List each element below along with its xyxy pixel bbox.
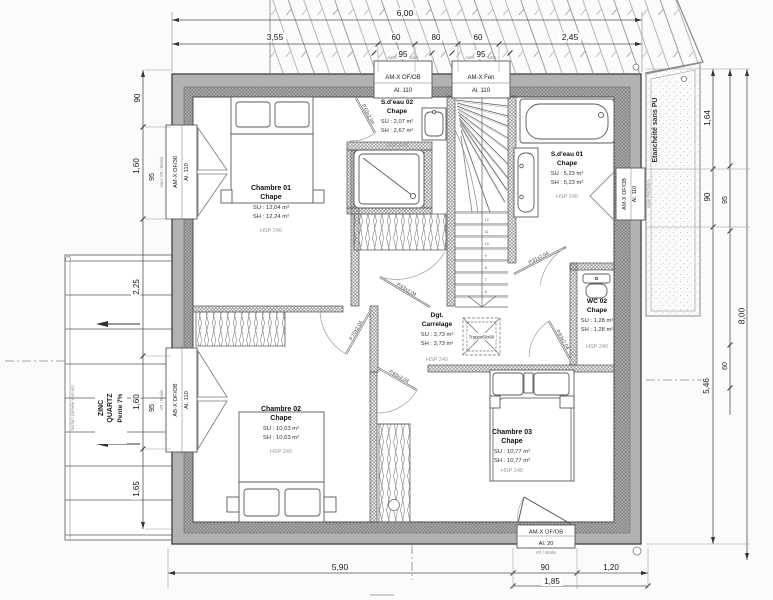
- svg-text:Al. 20: Al. 20: [539, 541, 554, 547]
- svg-text:Al. 110: Al. 110: [394, 88, 413, 94]
- svg-text:95: 95: [149, 404, 156, 412]
- svg-text:sans VR / Bsolin: sans VR / Bsolin: [159, 156, 164, 187]
- svg-text:1,20: 1,20: [603, 563, 619, 572]
- svg-text:AM-X OF/36: AM-X OF/36: [173, 156, 179, 188]
- svg-text:Chambre 02: Chambre 02: [261, 406, 301, 413]
- svg-text:ZINC: ZINC: [98, 400, 105, 416]
- svg-text:AB-X OF/OB: AB-X OF/OB: [173, 383, 179, 416]
- svg-text:80: 80: [432, 33, 441, 42]
- svg-text:Dgt.: Dgt.: [431, 312, 444, 319]
- svg-text:SH : 3,73 m²: SH : 3,73 m²: [421, 341, 454, 347]
- svg-text:Chambre 03: Chambre 03: [492, 429, 532, 436]
- svg-text:2,25: 2,25: [132, 279, 141, 295]
- svg-text:Pente 7%: Pente 7%: [117, 393, 124, 422]
- svg-text:60: 60: [722, 362, 729, 370]
- svg-text:90: 90: [541, 563, 550, 572]
- svg-text:SH : 1,28 m²: SH : 1,28 m²: [581, 327, 614, 333]
- svg-text:AM-X Fen: AM-X Fen: [467, 75, 494, 81]
- svg-text:5,46: 5,46: [702, 378, 711, 394]
- svg-text:1,60: 1,60: [132, 158, 141, 174]
- svg-text:SU : 12,04 m²: SU : 12,04 m²: [253, 205, 289, 211]
- svg-text:Al. 110: Al. 110: [184, 391, 190, 409]
- svg-text:AM-X OF/OB: AM-X OF/OB: [385, 75, 420, 81]
- svg-text:6,00: 6,00: [397, 8, 414, 18]
- svg-text:Chape: Chape: [270, 415, 292, 422]
- svg-text:VR / Bsolin: VR / Bsolin: [159, 389, 164, 410]
- svg-text:SU : 10,63 m²: SU : 10,63 m²: [263, 426, 299, 432]
- svg-text:SH : 5,23 m²: SH : 5,23 m²: [551, 180, 584, 186]
- svg-text:Chape: Chape: [501, 438, 523, 445]
- svg-text:95: 95: [722, 196, 729, 204]
- svg-text:SH : 12,24 m²: SH : 12,24 m²: [253, 214, 289, 220]
- svg-text:SH : 2,67 m²: SH : 2,67 m²: [381, 128, 414, 134]
- svg-text:VR / Bsolin: VR / Bsolin: [536, 550, 557, 555]
- svg-text:95: 95: [477, 50, 486, 59]
- svg-text:SU : 2,07 m²: SU : 2,07 m²: [381, 119, 414, 125]
- svg-text:Chape: Chape: [557, 160, 577, 167]
- svg-text:SU : 10,77 m²: SU : 10,77 m²: [494, 449, 530, 455]
- svg-text:1,65: 1,65: [132, 481, 141, 497]
- svg-text:HSP 240: HSP 240: [501, 468, 523, 474]
- svg-text:1,85: 1,85: [544, 577, 560, 586]
- svg-text:HSP 240: HSP 240: [260, 228, 282, 234]
- svg-text:AM-X OF/OB: AM-X OF/OB: [622, 178, 628, 210]
- svg-text:Carrelage: Carrelage: [422, 321, 453, 328]
- svg-text:HSP 240: HSP 240: [586, 344, 608, 350]
- svg-text:HSP 240: HSP 240: [386, 143, 408, 149]
- svg-text:90: 90: [703, 192, 712, 201]
- svg-text:SH : 10,63 m²: SH : 10,63 m²: [263, 435, 299, 441]
- svg-text:95: 95: [149, 173, 156, 181]
- svg-text:HSP 240: HSP 240: [270, 449, 292, 455]
- svg-text:Al. 110: Al. 110: [184, 163, 190, 181]
- svg-text:8,00: 8,00: [736, 307, 746, 324]
- svg-text:Chambre 01: Chambre 01: [251, 185, 291, 192]
- svg-text:S.d'eau 01: S.d'eau 01: [551, 151, 584, 158]
- svg-text:Trappe60x60: Trappe60x60: [469, 335, 495, 340]
- svg-text:Chape: Chape: [260, 194, 282, 201]
- svg-text:1,64: 1,64: [703, 110, 712, 126]
- svg-text:95: 95: [399, 50, 408, 59]
- svg-text:SU : 1,28 m²: SU : 1,28 m²: [581, 318, 614, 324]
- svg-text:HSP 240: HSP 240: [556, 194, 578, 200]
- svg-text:10: 10: [485, 241, 490, 246]
- svg-text:Al. 110: Al. 110: [472, 88, 491, 94]
- svg-text:90: 90: [133, 93, 142, 102]
- svg-text:5,90: 5,90: [332, 562, 349, 572]
- svg-text:60: 60: [392, 33, 401, 42]
- svg-text:Sortant (arrivée vent-air): Sortant (arrivée vent-air): [70, 385, 75, 431]
- svg-text:WC 02: WC 02: [587, 298, 607, 305]
- svg-text:Etanchéité sans PU: Etanchéité sans PU: [652, 98, 659, 163]
- svg-text:QUARTZ: QUARTZ: [107, 393, 114, 423]
- svg-text:1,60: 1,60: [132, 394, 141, 410]
- svg-text:SU : 5,23 m²: SU : 5,23 m²: [551, 171, 584, 177]
- svg-text:S.d'eau 02: S.d'eau 02: [381, 99, 414, 106]
- svg-text:Chape: Chape: [587, 307, 607, 314]
- svg-text:SH : 10,77 m²: SH : 10,77 m²: [494, 458, 530, 464]
- svg-text:HSP 240: HSP 240: [426, 357, 448, 363]
- svg-text:2,45: 2,45: [562, 32, 579, 42]
- svg-text:12: 12: [485, 217, 490, 222]
- svg-text:Chape: Chape: [387, 108, 407, 115]
- svg-text:60: 60: [474, 33, 483, 42]
- svg-text:SU : 3,73 m²: SU : 3,73 m²: [421, 332, 454, 338]
- svg-text:Al. 110: Al. 110: [632, 186, 638, 202]
- svg-text:sans PU/Grdm: sans PU/Grdm: [646, 180, 651, 208]
- svg-text:3,55: 3,55: [267, 32, 284, 42]
- svg-text:AM-X OF/OB: AM-X OF/OB: [529, 530, 563, 536]
